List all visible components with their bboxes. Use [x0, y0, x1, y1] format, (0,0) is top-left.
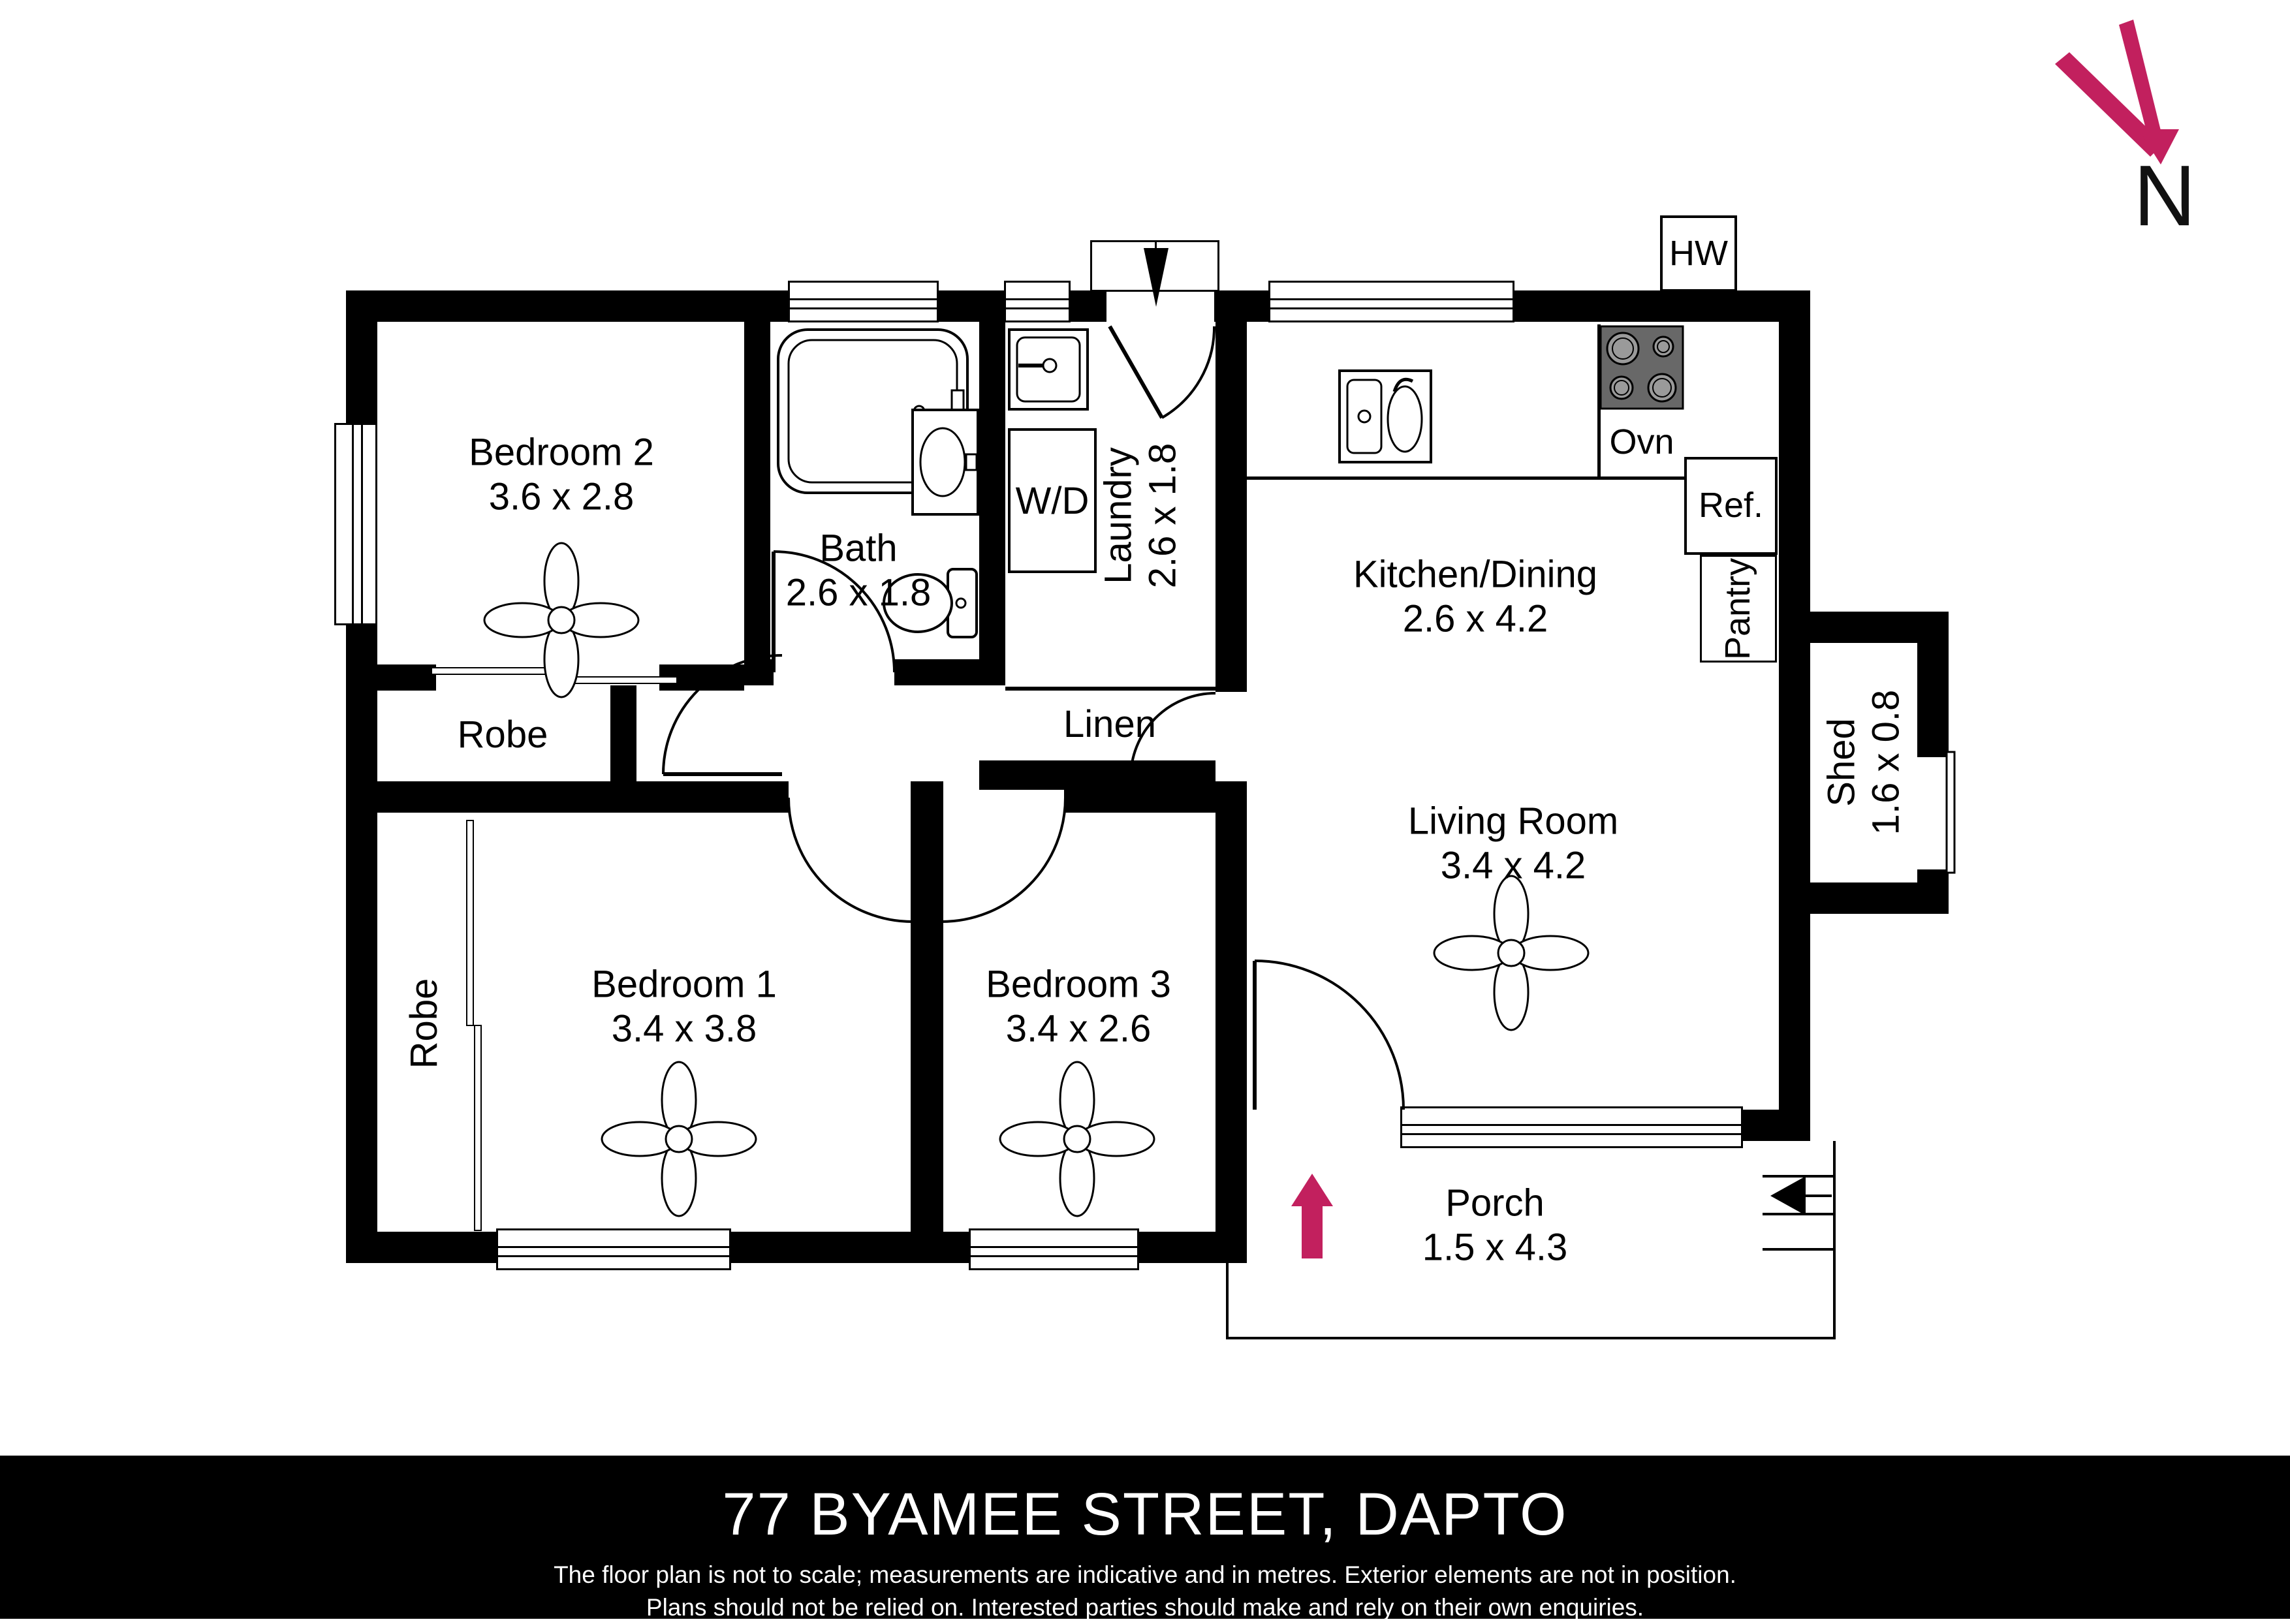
shed-door-leaf — [1947, 752, 1954, 873]
laundry-tub-icon — [1009, 330, 1088, 409]
front-door-arc — [1255, 961, 1404, 1110]
address-title: 77 BYAMEE STREET, DAPTO — [0, 1480, 2290, 1549]
bedroom1-door-arc — [789, 798, 913, 922]
entry-door-arc — [1110, 326, 1214, 418]
hall-door-arc — [663, 655, 782, 774]
room-dims: 3.4 x 3.8 — [591, 1007, 777, 1052]
disclaimer-line1: The floor plan is not to scale; measurem… — [0, 1559, 2290, 1591]
room-label-porch: Porch 1.5 x 4.3 — [1422, 1181, 1567, 1271]
wd-label: W/D — [1016, 479, 1090, 523]
ceiling-fan-icon — [602, 1062, 756, 1216]
room-label-bedroom1: Bedroom 1 3.4 x 3.8 — [591, 963, 777, 1052]
ceiling-fan-icon — [1434, 876, 1588, 1030]
robe-bedroom1-label: Robe — [402, 978, 447, 1069]
bedroom3-door-arc — [941, 798, 1065, 922]
room-dims: 1.5 x 4.3 — [1422, 1226, 1567, 1270]
room-dims: 3.4 x 2.6 — [986, 1007, 1171, 1052]
vanity-sink-icon — [913, 410, 978, 514]
room-dims: 3.6 x 2.8 — [469, 475, 654, 520]
room-label-bath: Bath 2.6 x 1.8 — [786, 527, 931, 616]
kitchen-sink-icon — [1340, 371, 1431, 462]
footer-bar: 77 BYAMEE STREET, DAPTO The floor plan i… — [0, 1456, 2290, 1619]
north-label: N — [2133, 145, 2195, 247]
room-name: Shed — [1820, 690, 1864, 835]
room-label-bedroom3: Bedroom 3 3.4 x 2.6 — [986, 963, 1171, 1052]
disclaimer-line2: Plans should not be relied on. Intereste… — [0, 1591, 2290, 1624]
entry-arrow-icon — [1291, 1174, 1333, 1258]
room-dims: 2.6 x 1.8 — [786, 571, 931, 616]
cooktop-icon — [1601, 326, 1683, 409]
room-label-shed: Shed 1.6 x 0.8 — [1820, 690, 1909, 835]
steps-down-arrow-icon — [1144, 248, 1169, 307]
room-name: Bedroom 2 — [469, 431, 654, 475]
room-label-laundry: Laundry 2.6 x 1.8 — [1097, 443, 1186, 588]
linen-label: Linen — [1063, 702, 1156, 747]
robe-bedroom2-label: Robe — [458, 713, 548, 757]
steps-left-arrow-icon — [1770, 1176, 1832, 1215]
room-name: Porch — [1422, 1181, 1567, 1226]
room-name: Bath — [786, 527, 931, 571]
room-label-kitchen: Kitchen/Dining 2.6 x 4.2 — [1353, 553, 1597, 642]
room-label-bedroom2: Bedroom 2 3.6 x 2.8 — [469, 431, 654, 520]
ceiling-fan-icon — [1000, 1062, 1154, 1216]
room-dims: 2.6 x 4.2 — [1353, 597, 1597, 642]
room-name: Bedroom 3 — [986, 963, 1171, 1007]
room-name: Bedroom 1 — [591, 963, 777, 1007]
room-name: Kitchen/Dining — [1353, 553, 1597, 597]
ceiling-fan-icon — [484, 543, 638, 697]
room-name: Laundry — [1097, 443, 1141, 588]
disclaimer: The floor plan is not to scale; measurem… — [0, 1559, 2290, 1624]
room-dims: 3.4 x 4.2 — [1408, 844, 1618, 888]
room-label-living: Living Room 3.4 x 4.2 — [1408, 800, 1618, 889]
floorplan-page: { "north": {"label": "N"}, "rooms": [ {"… — [0, 0, 2290, 1619]
oven-label: Ovn — [1609, 422, 1674, 463]
room-name: Living Room — [1408, 800, 1618, 844]
room-dims: 2.6 x 1.8 — [1141, 443, 1185, 588]
plan-overlay: “KNOCK-KNOCK” REAL ESTATE — [0, 0, 2290, 1619]
room-dims: 1.6 x 0.8 — [1864, 690, 1909, 835]
north-arrow-icon — [2055, 20, 2179, 164]
